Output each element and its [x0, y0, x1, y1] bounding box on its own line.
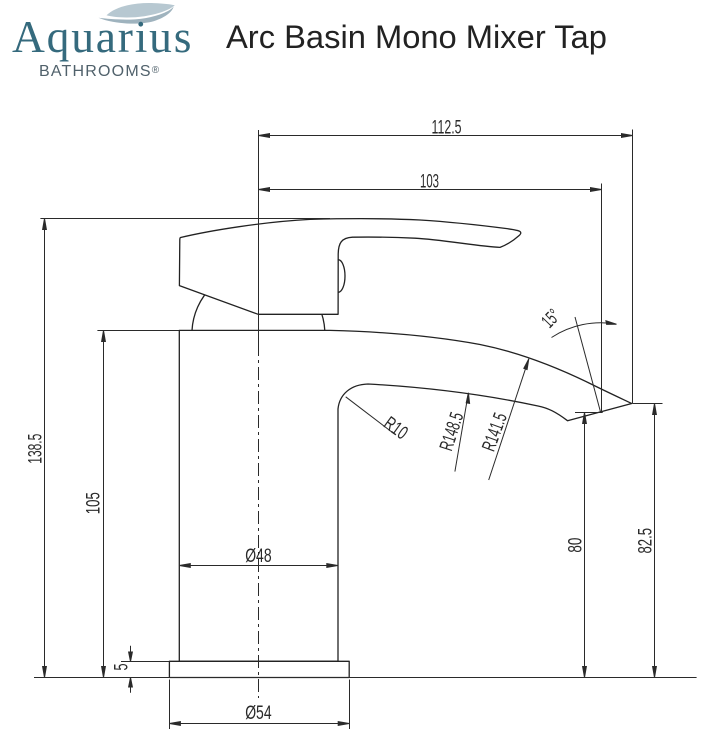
svg-text:105: 105 — [84, 492, 105, 514]
svg-text:82.5: 82.5 — [636, 528, 657, 554]
svg-text:Ø54: Ø54 — [245, 703, 272, 724]
svg-text:103: 103 — [420, 172, 439, 193]
svg-text:80: 80 — [566, 538, 587, 553]
svg-text:5: 5 — [112, 664, 133, 671]
svg-text:Arc Basin Mono Mixer Tap: Arc Basin Mono Mixer Tap — [226, 18, 607, 55]
svg-text:138.5: 138.5 — [26, 434, 47, 464]
svg-text:Aquarius: Aquarius — [12, 11, 193, 62]
svg-text:Ø48: Ø48 — [245, 546, 271, 567]
svg-text:112.5: 112.5 — [432, 117, 462, 138]
svg-text:BATHROOMS®: BATHROOMS® — [39, 63, 160, 80]
